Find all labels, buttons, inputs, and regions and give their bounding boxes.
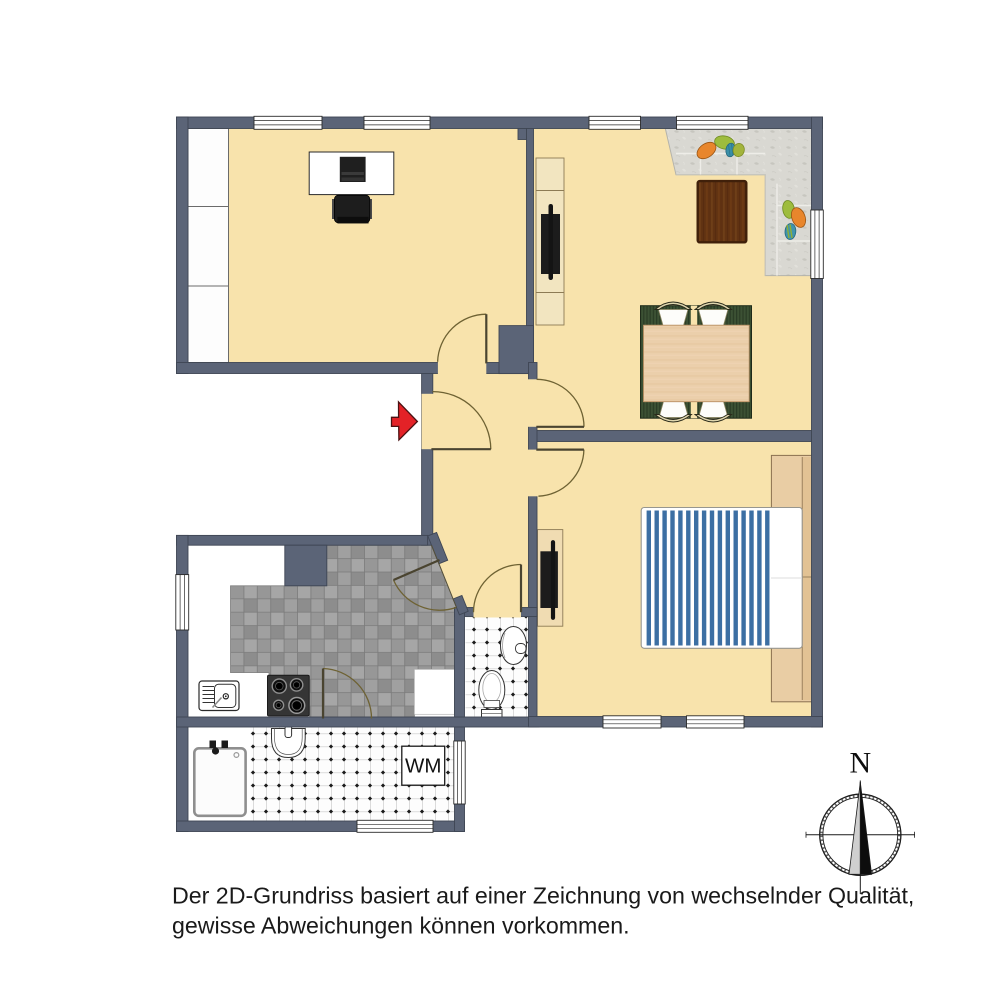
- svg-text:N: N: [849, 747, 871, 780]
- svg-text:gewisse Abweichungen können vo: gewisse Abweichungen können vorkommen.: [172, 913, 630, 939]
- svg-text:Der 2D-Grundriss basiert auf e: Der 2D-Grundriss basiert auf einer Zeich…: [172, 883, 914, 909]
- svg-text:WM: WM: [405, 755, 441, 778]
